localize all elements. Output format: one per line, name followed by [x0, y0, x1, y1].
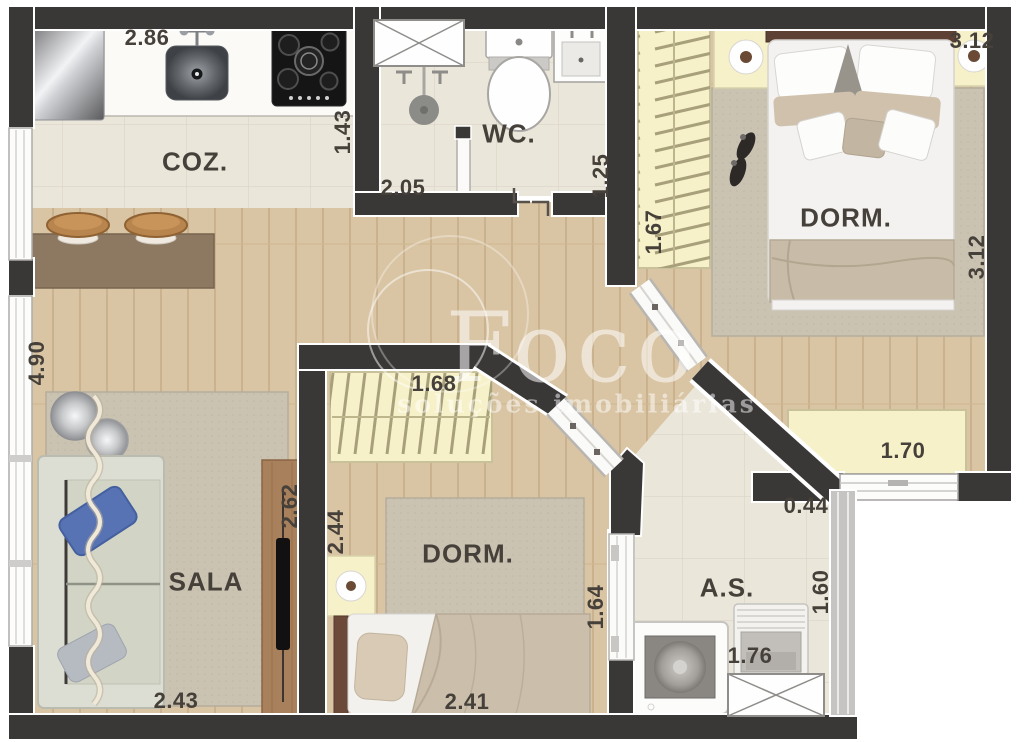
- toilet: [486, 28, 552, 131]
- dim-wc-depth: 1.25: [588, 154, 614, 199]
- fridge: [26, 28, 104, 120]
- dim-wc-shower-width: 2.05: [381, 175, 426, 201]
- wall-bottom: [8, 714, 858, 740]
- floor-plan: Foco soluções imobiliárias 2.86 1.43 COZ…: [0, 0, 1024, 742]
- dim-bedroom1-closet: 1.67: [641, 210, 667, 255]
- sink-drain-dot: [195, 72, 199, 76]
- double-bed: [766, 22, 956, 310]
- pillow: [354, 632, 408, 701]
- washing-machine: [630, 622, 728, 714]
- nightstand: [327, 556, 375, 616]
- dim-bedroom2-width: 2.41: [445, 689, 490, 715]
- room-label-bedroom2: DORM.: [422, 539, 514, 570]
- dim-service-depth: 1.60: [808, 570, 834, 615]
- watermark-brand: Foco: [446, 292, 701, 404]
- shower-partition: [457, 138, 470, 196]
- room-label-wc: WC.: [482, 119, 536, 150]
- kitchen-island: [24, 234, 214, 288]
- window-wc: [374, 20, 464, 66]
- dim-kitchen-depth: 1.43: [330, 110, 356, 155]
- dim-service-passage: 0.44: [784, 493, 829, 519]
- wall-wc-south-left: [354, 192, 518, 216]
- wall-living-bedroom2: [298, 344, 326, 714]
- cooktop: [272, 26, 346, 106]
- window-bedroom1: [840, 474, 958, 500]
- window-kitchen-left: [9, 128, 32, 260]
- dim-kitchen-width: 2.86: [125, 25, 170, 51]
- dim-bedroom2-depth: 2.44: [323, 510, 349, 555]
- dim-service-width: 1.76: [728, 643, 773, 669]
- headboard: [334, 616, 348, 714]
- tv: [276, 538, 290, 650]
- dim-living-depth: 4.90: [24, 341, 50, 386]
- dim-bedroom2-closet: 1.68: [412, 371, 457, 397]
- dim-bedroom2-side: 1.64: [583, 585, 609, 630]
- dim-bedroom1-depth: 3.12: [964, 235, 990, 280]
- wall-wc-bedroom1: [606, 6, 636, 286]
- room-label-kitchen: COZ.: [162, 147, 228, 178]
- room-label-bedroom1: DORM.: [800, 203, 892, 234]
- window-bedroom2-service: [609, 534, 634, 660]
- dim-bedroom1-width: 3.12: [950, 28, 995, 54]
- blanket: [770, 240, 954, 302]
- wall-left-pillar: [8, 258, 34, 296]
- window-service: [728, 674, 824, 716]
- wall-bedroom1-bottom-right: [956, 472, 1012, 502]
- room-label-living: SALA: [169, 567, 244, 598]
- dim-bedroom1-wardrobe: 1.70: [881, 438, 926, 464]
- dim-living-tv-wall: 2.62: [277, 484, 303, 529]
- wall-left-top: [8, 6, 34, 128]
- room-label-service: A.S.: [700, 573, 755, 604]
- dim-living-width: 2.43: [154, 688, 199, 714]
